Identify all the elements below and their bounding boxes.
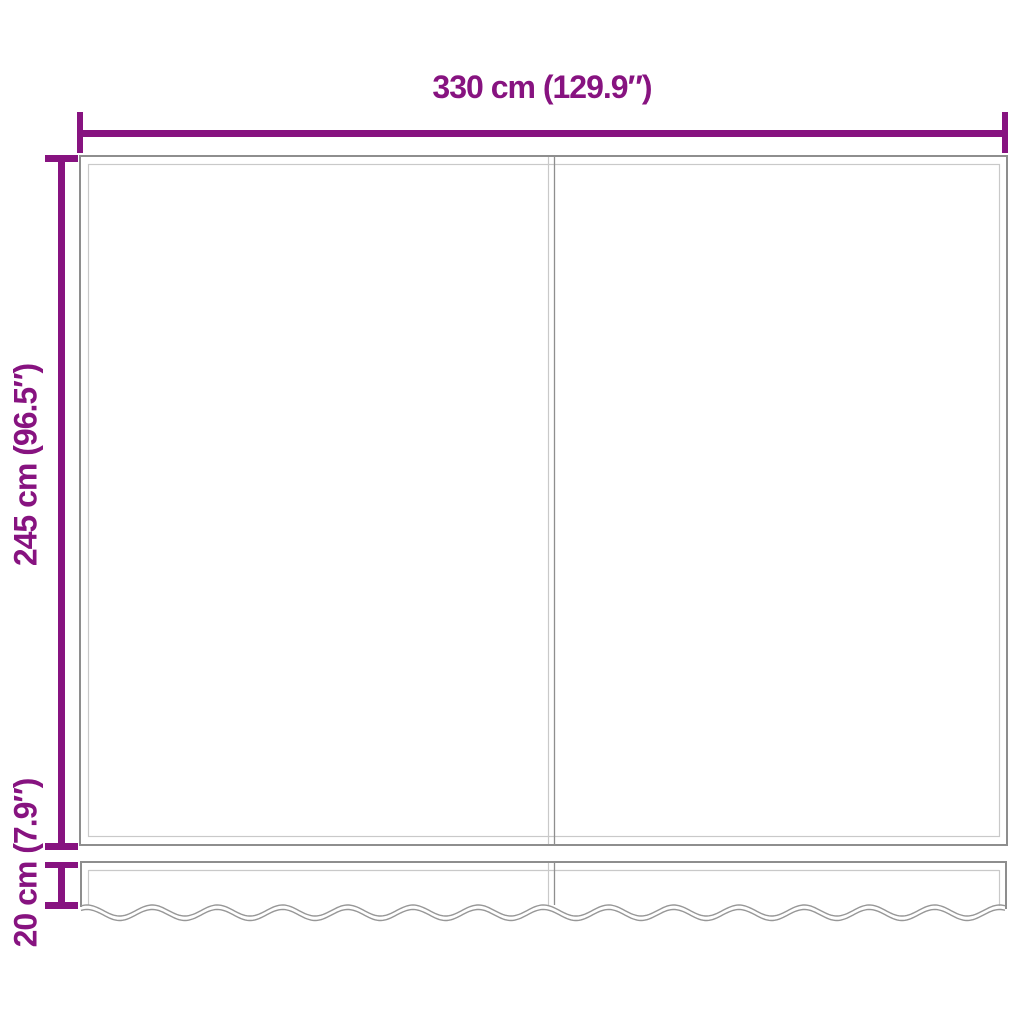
width-dimension-line xyxy=(77,112,1008,153)
awning-drawing xyxy=(0,0,1024,1024)
height-dimension-label: 245 cm (96.5″) xyxy=(8,364,43,566)
valance-dimension-top-tick xyxy=(45,862,78,868)
height-dimension-bar xyxy=(58,157,65,846)
height-dimension-line xyxy=(45,155,78,850)
width-dimension-right-tick xyxy=(1002,112,1008,153)
valance-dimension-label: 20 cm (7.9″) xyxy=(8,779,43,948)
width-dimension-label: 330 cm (129.9″) xyxy=(432,70,651,105)
height-dimension-top-tick xyxy=(45,155,78,162)
height-dimension-bottom-tick xyxy=(45,843,78,850)
valance-dimension-bar xyxy=(58,864,65,907)
width-dimension-left-tick xyxy=(77,112,83,153)
fabric-panel-outline xyxy=(80,156,1007,845)
valance-outline xyxy=(80,862,1007,921)
valance-wavy-edge-lower xyxy=(81,910,1005,921)
dimension-diagram: 330 cm (129.9″) 245 cm (96.5″) 20 cm (7.… xyxy=(0,0,1024,1024)
center-seam xyxy=(549,157,555,844)
fabric-panel-inner-stitch xyxy=(89,165,1000,837)
fabric-panel-outer-edge xyxy=(80,156,1007,845)
valance-dimension-bottom-tick xyxy=(45,902,78,909)
valance-dimension-line xyxy=(45,862,78,909)
valance-wavy-edge-upper xyxy=(81,905,1005,916)
width-dimension-bar xyxy=(77,130,1008,137)
